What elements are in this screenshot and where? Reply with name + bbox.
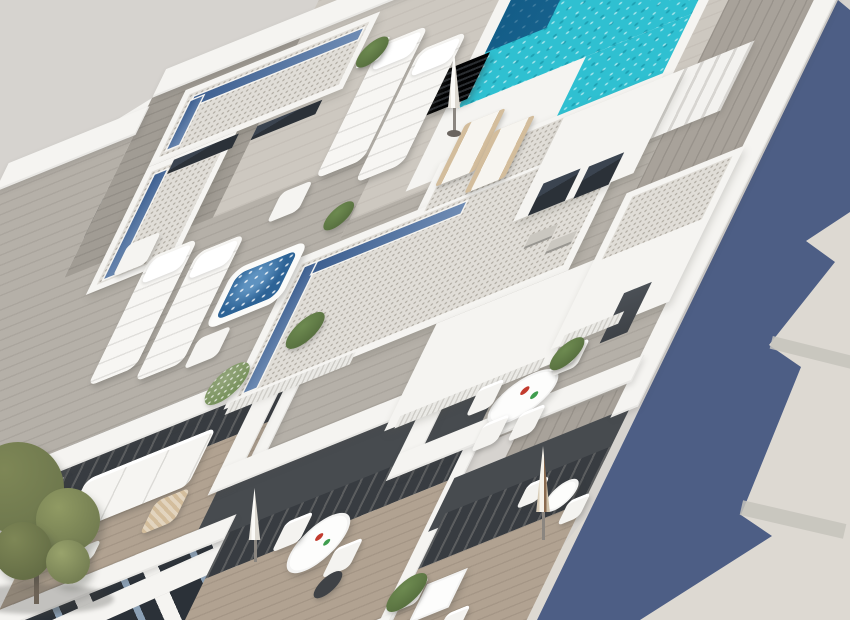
parasol-pole: [542, 512, 545, 540]
closed-parasol: [246, 488, 264, 568]
architectural-rendering: [0, 0, 850, 620]
parasol-canopy: [534, 446, 552, 512]
parasol-pole: [453, 108, 456, 132]
closed-parasol: [532, 446, 554, 546]
parasol-canopy: [247, 488, 262, 540]
parasol-canopy: [446, 50, 462, 108]
parasol-base: [447, 130, 461, 137]
parasol-pole: [254, 540, 257, 562]
closed-parasol: [444, 50, 464, 140]
street-tree-canopy: [46, 540, 90, 584]
